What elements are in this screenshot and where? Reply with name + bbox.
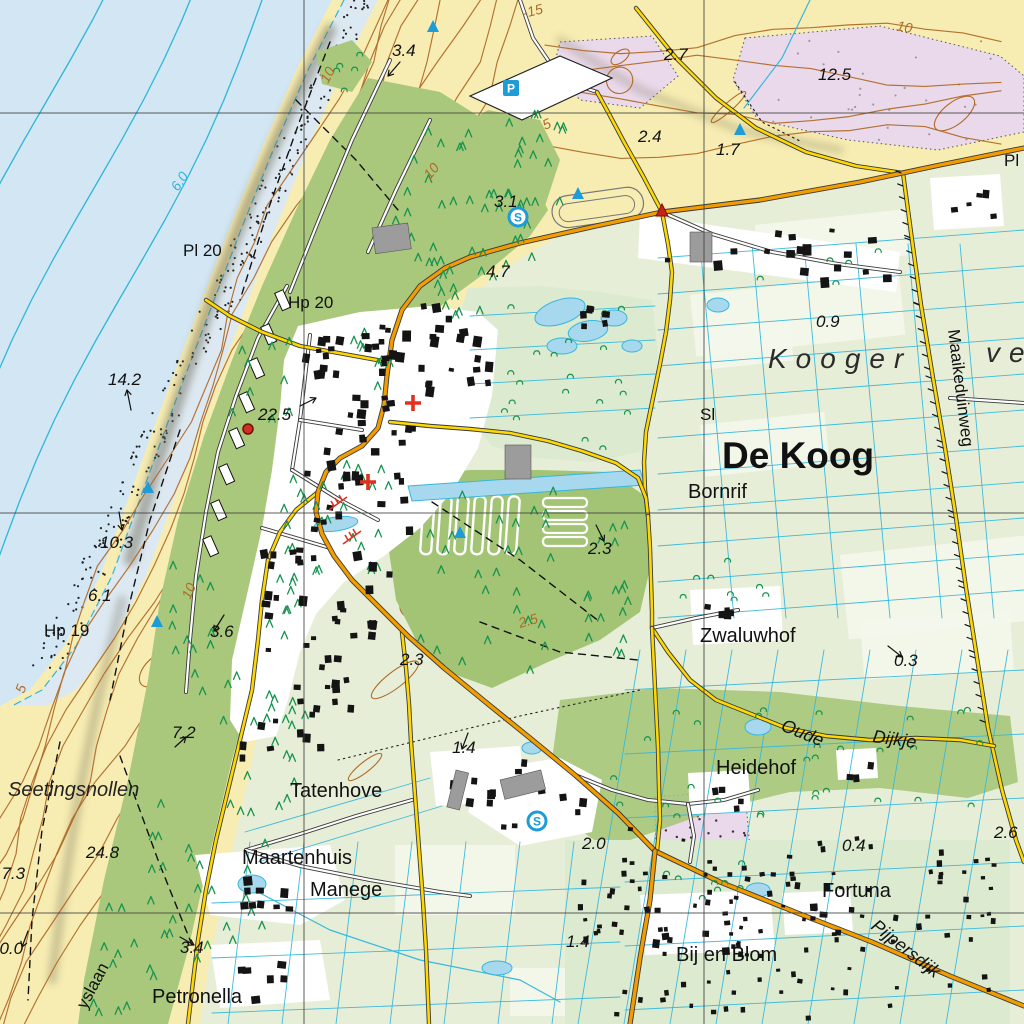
spot-height-label: 3.4 — [392, 41, 416, 60]
place-label: Tatenhove — [290, 780, 382, 802]
spot-height-label: 10.3 — [100, 533, 134, 552]
spot-height-label: 14.2 — [108, 370, 142, 389]
place-label: Sl — [700, 405, 715, 424]
svg-text:S: S — [533, 815, 541, 829]
red-dot-icon — [243, 424, 253, 434]
spot-height-label: 20.0 — [0, 939, 24, 958]
svg-text:P: P — [507, 82, 515, 96]
spot-height-label: 2.3 — [399, 650, 424, 669]
spot-height-label: 7.2 — [172, 723, 196, 742]
place-label: Manege — [310, 879, 382, 901]
spot-height-label: 3.6 — [210, 622, 234, 641]
spot-height-label: 22.5 — [257, 405, 292, 424]
place-label: Maartenhuis — [242, 847, 352, 869]
map-svg: PSS De KoogKoogervelBornrifSlZwaluwhofHe… — [0, 0, 1024, 1024]
spot-height-label: 2.4 — [637, 127, 662, 146]
place-label: Heidehof — [716, 757, 797, 779]
spot-height-label: 3.4 — [180, 938, 204, 957]
spot-height-label: 0.4 — [842, 836, 866, 855]
spot-height-label: 17.3 — [0, 864, 26, 883]
spot-height-label: 1.7 — [716, 140, 740, 159]
place-label: Pl 20 — [183, 241, 222, 260]
place-label: De Koog — [722, 435, 874, 476]
place-label: Hp 19 — [44, 621, 89, 640]
parking-icon: P — [503, 80, 519, 96]
spot-height-label: 12.5 — [818, 65, 852, 84]
spot-height-label: 2.0 — [581, 834, 606, 853]
spot-height-label: 1.4 — [566, 932, 590, 951]
place-label: Fortuna — [822, 880, 892, 902]
spot-height-label: 24.8 — [85, 843, 120, 862]
place-label: Zwaluwhof — [700, 625, 796, 647]
place-label: Pl — [1004, 151, 1019, 170]
spot-height-label: 6.1 — [88, 586, 112, 605]
s-circle-icon: S — [528, 812, 546, 830]
spot-height-label: 4.7 — [486, 262, 510, 281]
place-label: vel — [986, 337, 1024, 368]
spot-height-label: 3.1 — [494, 192, 518, 211]
spot-height-label: 1.4 — [452, 738, 476, 757]
spot-height-label: 0.9 — [816, 312, 840, 331]
spot-height-label: 2.7 — [663, 45, 688, 64]
place-label: Bornrif — [688, 481, 747, 503]
topo-map-canvas: PSS De KoogKoogervelBornrifSlZwaluwhofHe… — [0, 0, 1024, 1024]
svg-text:S: S — [514, 211, 522, 225]
spot-height-label: 2.3 — [587, 539, 612, 558]
spot-height-label: 0.3 — [894, 651, 918, 670]
place-label: Kooger — [768, 343, 912, 374]
place-label: Petronella — [152, 986, 243, 1008]
spot-height-label: 2.6 — [993, 823, 1018, 842]
place-label: Seetingsnollen — [8, 779, 139, 801]
place-label: Bij en Blom — [676, 944, 777, 966]
place-label: Hp 20 — [288, 293, 333, 312]
